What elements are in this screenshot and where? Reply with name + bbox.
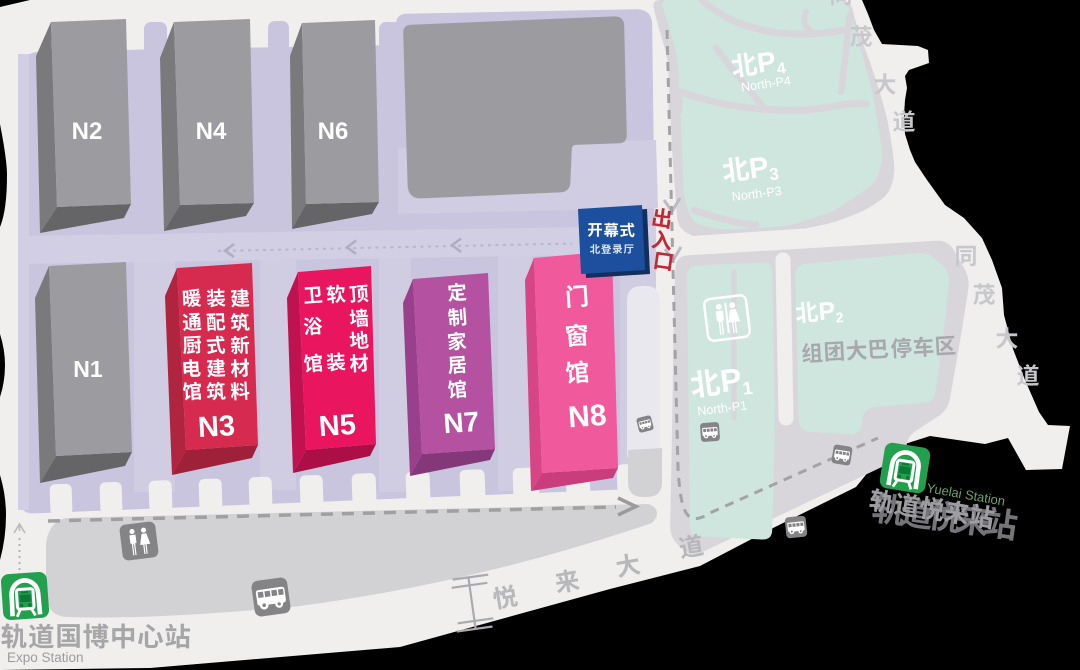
svg-text:N3: N3 [197,410,236,444]
svg-text:N6: N6 [318,118,349,145]
svg-text:Expo Station: Expo Station [7,650,84,665]
svg-text:N1: N1 [73,356,103,382]
svg-text:N5: N5 [318,409,357,444]
svg-text:N2: N2 [72,118,103,145]
svg-text:N4: N4 [196,118,227,145]
svg-text:N8: N8 [567,399,608,435]
svg-text:N7: N7 [442,406,480,439]
